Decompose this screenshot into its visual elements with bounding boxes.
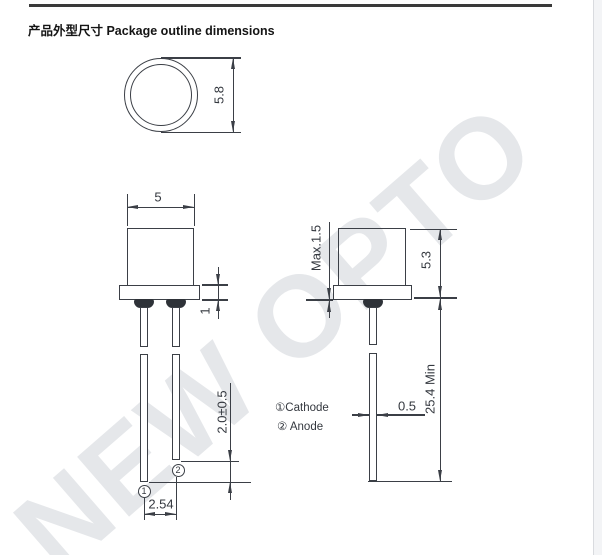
arrowhead-right bbox=[165, 512, 176, 516]
dim-lead-tip-offset: 2.0±0.5 bbox=[215, 390, 230, 433]
watermark-text: NEW OPTO bbox=[0, 78, 560, 555]
arrowhead-left bbox=[127, 205, 138, 209]
led-flange-front bbox=[119, 285, 200, 300]
extension-line bbox=[161, 57, 241, 59]
dim-top-view-diameter: 5.8 bbox=[212, 86, 227, 104]
arrowhead-up bbox=[228, 482, 232, 493]
page-edge-line bbox=[593, 0, 594, 555]
extension-line bbox=[149, 482, 251, 484]
page-gutter bbox=[594, 0, 602, 555]
arrowhead-up bbox=[216, 300, 220, 311]
top-view-inner-circle bbox=[130, 64, 192, 126]
arrowhead-up bbox=[438, 229, 442, 240]
arrowhead-down bbox=[231, 121, 235, 132]
arrowhead-right bbox=[183, 205, 194, 209]
extension-line bbox=[414, 297, 457, 299]
extension-line bbox=[127, 194, 129, 226]
dimension-line bbox=[440, 229, 442, 481]
arrowhead-up bbox=[327, 301, 331, 312]
led-flange-side bbox=[333, 285, 412, 300]
extension-line bbox=[161, 132, 241, 134]
cathode-lead-lower bbox=[140, 354, 148, 482]
dim-flange-thickness: 1 bbox=[198, 307, 213, 314]
extension-line bbox=[144, 498, 146, 520]
arrowhead-down bbox=[228, 450, 232, 461]
arrowhead-left bbox=[377, 413, 388, 417]
arrowhead-right bbox=[358, 413, 369, 417]
section-title: 产品外型尺寸 Package outline dimensions bbox=[28, 20, 275, 39]
anode-lead-upper bbox=[172, 307, 180, 347]
arrowhead-down bbox=[438, 470, 442, 481]
arrowhead-up bbox=[231, 58, 235, 69]
cathode-lead-upper bbox=[140, 307, 148, 347]
arrowhead-up bbox=[438, 299, 442, 310]
arrowhead-down bbox=[327, 288, 331, 299]
pin-marker-anode: 2 bbox=[172, 464, 185, 477]
anode-lead-lower bbox=[172, 354, 180, 460]
dim-body-width: 5 bbox=[154, 190, 161, 205]
arrowhead-down bbox=[216, 274, 220, 285]
dim-lead-pitch: 2.54 bbox=[148, 497, 173, 512]
top-rule bbox=[29, 4, 552, 7]
arrowhead-down bbox=[438, 286, 442, 297]
anode-label: ② Anode bbox=[277, 419, 323, 433]
datasheet-page: 产品外型尺寸 Package outline dimensions NEW OP… bbox=[0, 0, 602, 555]
led-body-side bbox=[338, 228, 406, 286]
dim-package-height: 5.3 bbox=[419, 251, 434, 269]
side-lead-upper bbox=[369, 307, 377, 345]
extension-line bbox=[410, 229, 457, 231]
arrowhead-left bbox=[144, 512, 155, 516]
led-body-front bbox=[127, 228, 194, 286]
dim-lead-length: 25.4 Min bbox=[423, 364, 438, 414]
cathode-label: ①Cathode bbox=[275, 400, 329, 414]
side-lead-lower bbox=[369, 353, 377, 481]
dim-lead-width: 0.5 bbox=[398, 399, 416, 414]
extension-line bbox=[194, 194, 196, 226]
dim-flange-max-height: Max.1.5 bbox=[309, 225, 324, 271]
